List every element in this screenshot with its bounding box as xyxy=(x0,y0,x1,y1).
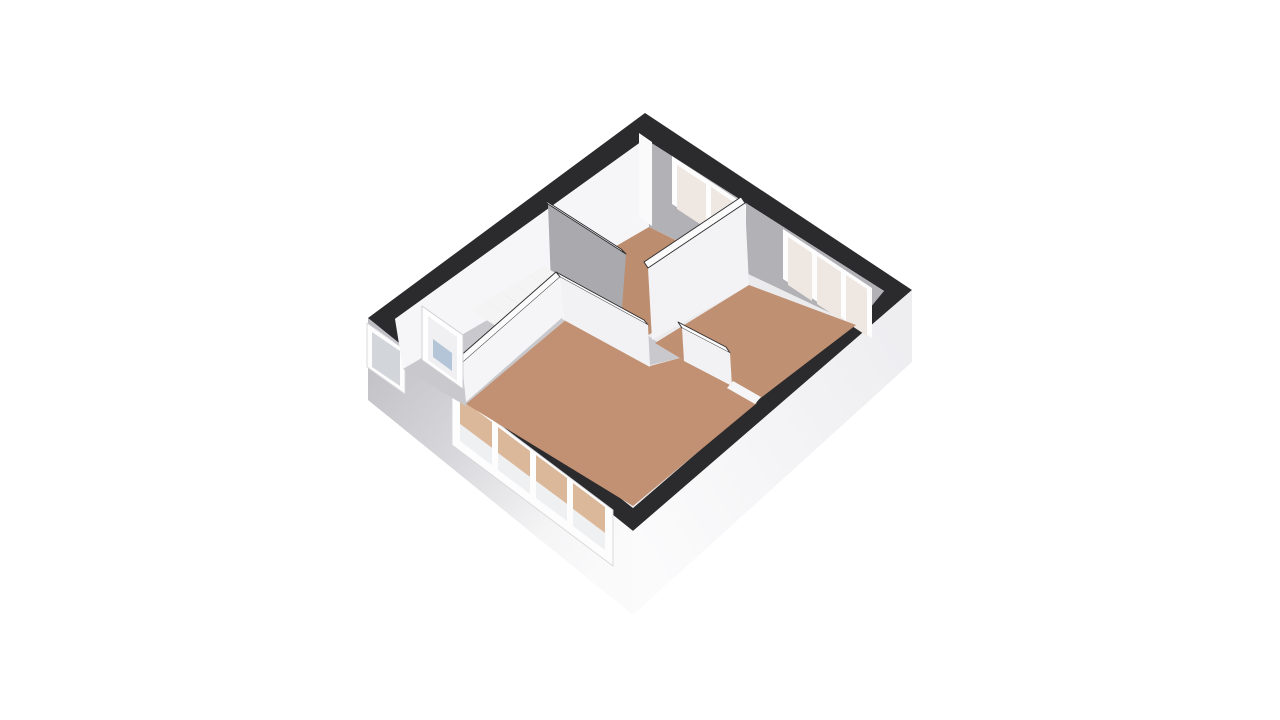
floor-plan-3d xyxy=(0,0,1280,720)
corner-pilaster xyxy=(639,133,652,226)
floor-plan-canvas xyxy=(0,0,1280,720)
